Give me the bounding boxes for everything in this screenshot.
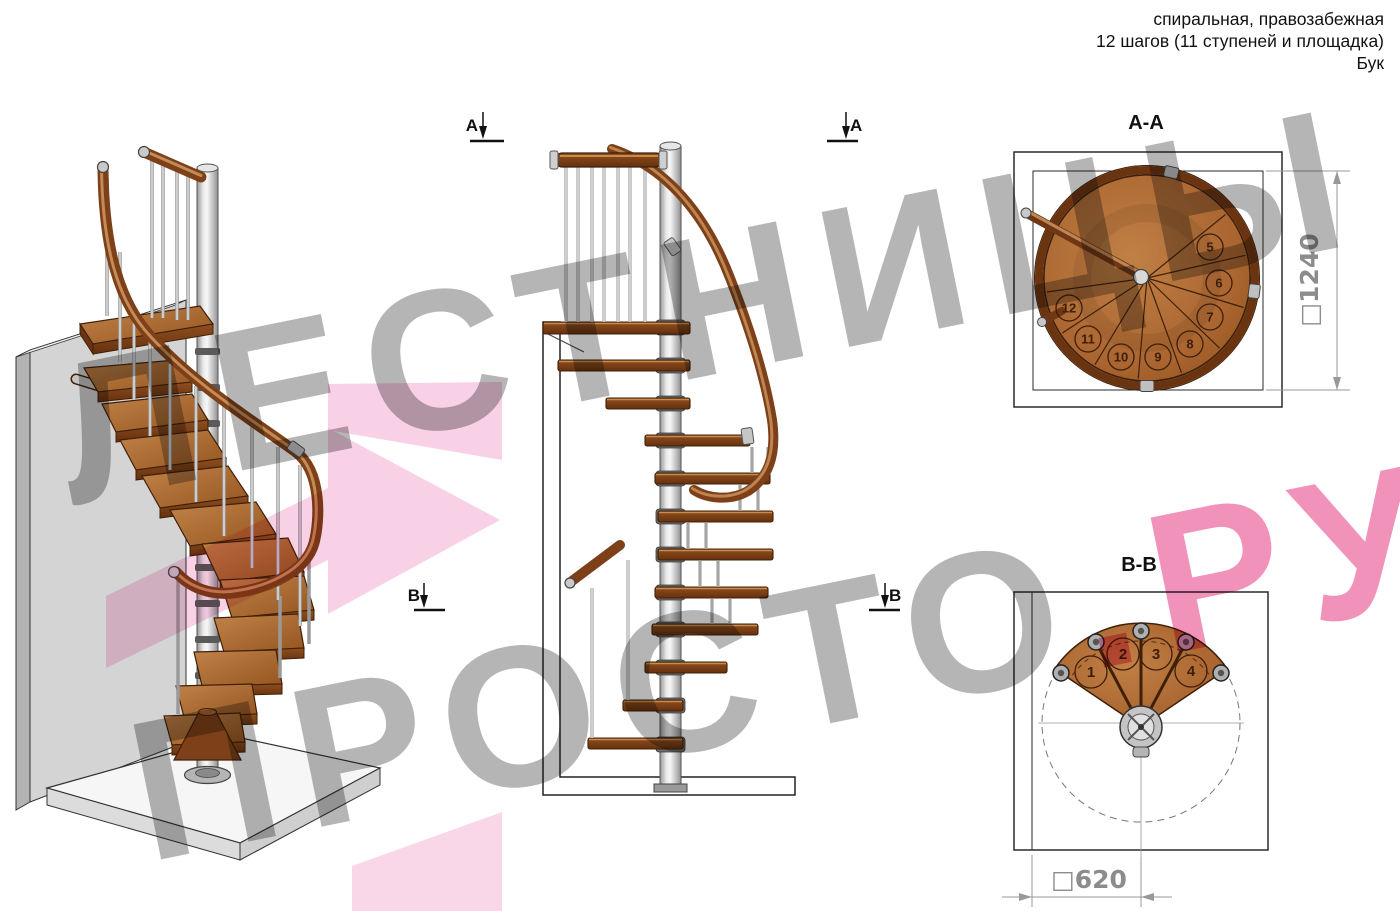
section-marker-a-right: A xyxy=(827,112,862,141)
stair-type: спиральная, правозабежная xyxy=(1096,8,1384,30)
title-block: спиральная, правозабежная 12 шагов (11 с… xyxy=(1096,8,1384,74)
bb-dimension: □620 xyxy=(1002,855,1172,907)
section-letter: B xyxy=(408,586,420,605)
section-letter: A xyxy=(466,116,478,135)
section-marker-a-left: A xyxy=(466,112,504,141)
section-marker-b-left: B xyxy=(408,583,445,610)
step-number: 10 xyxy=(1114,350,1128,365)
step-number: 8 xyxy=(1186,337,1193,352)
staircase-drawing: A A B B A-A xyxy=(0,0,1400,911)
section-letter: A xyxy=(850,116,862,135)
stair-steps-info: 12 шагов (11 ступеней и площадка) xyxy=(1096,30,1384,52)
step-number: 9 xyxy=(1154,350,1161,365)
landing-rail-3d xyxy=(139,147,202,178)
elevation-landing-rail xyxy=(550,151,667,169)
watermark-line2-pink: .РУ xyxy=(1055,420,1400,712)
dimension-label: □620 xyxy=(1051,865,1127,894)
drawing-sheet: A A B B A-A xyxy=(0,0,1400,911)
stair-material: Бук xyxy=(1096,52,1384,74)
rail-end-cap xyxy=(98,162,109,173)
